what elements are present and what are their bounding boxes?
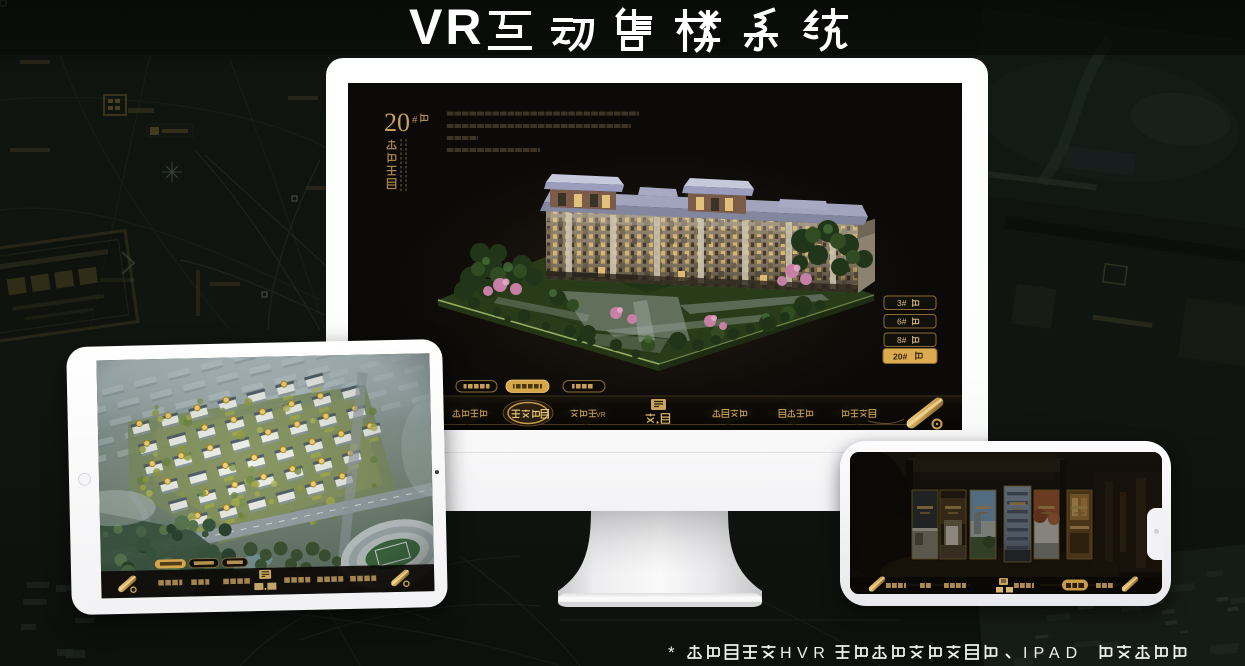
svg-text:IPAD: IPAD	[1023, 645, 1083, 662]
svg-text:*: *	[668, 643, 675, 662]
svg-text:HVR: HVR	[780, 645, 830, 662]
